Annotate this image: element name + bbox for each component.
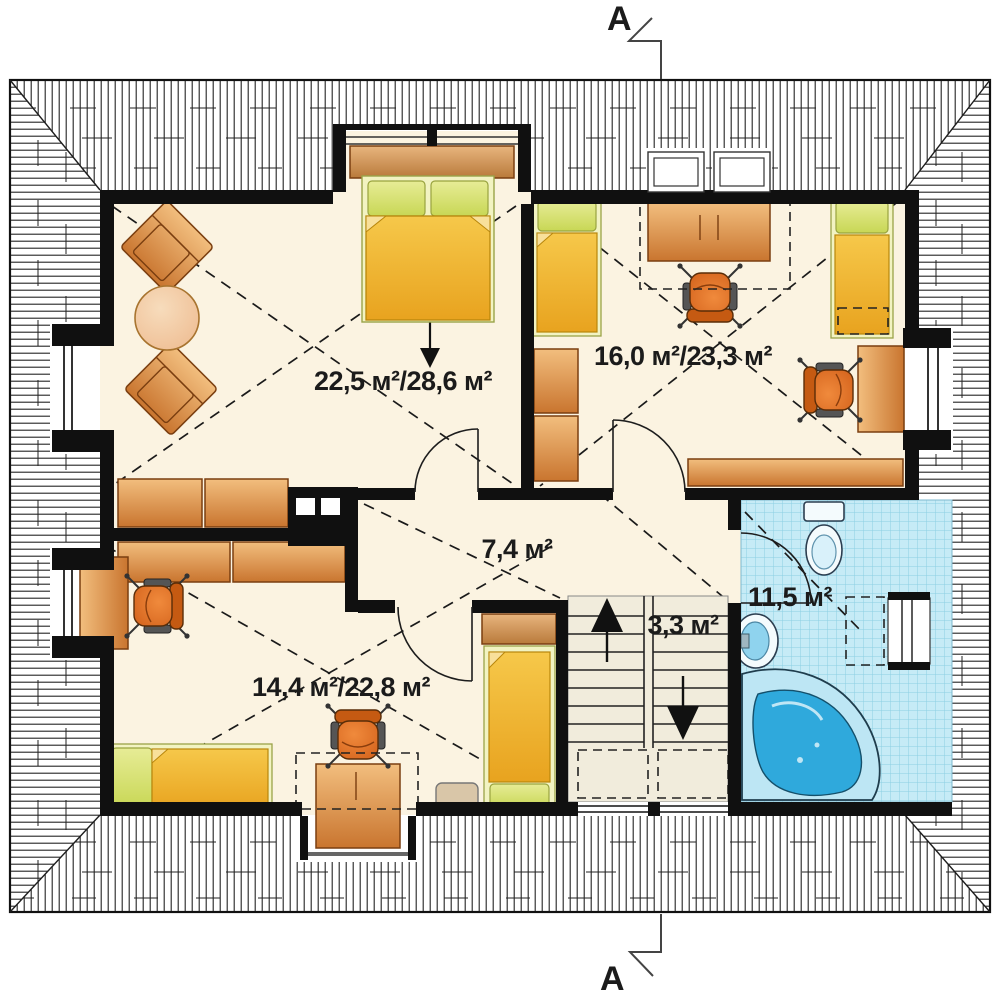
desk bbox=[316, 764, 400, 848]
section-marker-bottom: A bbox=[600, 914, 661, 994]
desk bbox=[858, 346, 904, 432]
single-bed bbox=[831, 196, 893, 338]
round-table bbox=[135, 286, 199, 350]
room-area-label: 3,3 м² bbox=[648, 610, 720, 640]
room-area-label: 16,0 м²/23,3 м² bbox=[594, 341, 773, 371]
single-bed bbox=[482, 614, 556, 810]
office-chair bbox=[325, 703, 390, 768]
dresser bbox=[350, 146, 514, 178]
bathroom-window bbox=[888, 592, 930, 670]
toilet bbox=[804, 502, 844, 575]
office-chair bbox=[677, 263, 742, 328]
office-chair bbox=[124, 573, 189, 638]
section-letter: A bbox=[607, 0, 631, 38]
floor-plan-svg: 22,5 м²/28,6 м² 16,0 м²/23,3 м² 7,4 м² 3… bbox=[0, 0, 1000, 994]
floor-plan-page: 22,5 м²/28,6 м² 16,0 м²/23,3 м² 7,4 м² 3… bbox=[0, 0, 1000, 994]
desk bbox=[80, 557, 128, 649]
single-bed bbox=[108, 744, 272, 812]
section-letter: A bbox=[600, 960, 624, 994]
double-bed bbox=[362, 176, 494, 322]
office-chair bbox=[797, 357, 862, 422]
shelf bbox=[688, 459, 903, 486]
desk bbox=[648, 203, 770, 261]
room-area-label: 7,4 м² bbox=[482, 534, 554, 564]
room-area-label: 22,5 м²/28,6 м² bbox=[314, 366, 493, 396]
single-bed bbox=[533, 196, 601, 336]
section-marker-top: A bbox=[607, 0, 661, 79]
room-area-label: 14,4 м²/22,8 м² bbox=[252, 672, 431, 702]
room-area-label: 11,5 м² bbox=[748, 582, 833, 612]
